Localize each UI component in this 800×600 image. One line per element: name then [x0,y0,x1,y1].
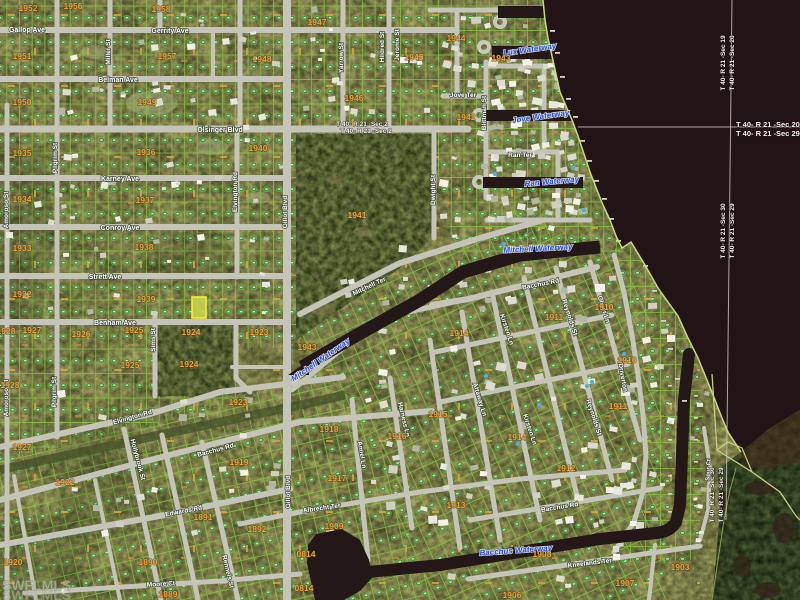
svg-text:1925: 1925 [125,325,144,335]
svg-text:1890: 1890 [139,557,158,567]
svg-text:Pilgrim St: Pilgrim St [51,376,58,407]
svg-text:1924: 1924 [180,359,199,369]
svg-text:1916: 1916 [388,431,407,441]
svg-text:Karney Ave: Karney Ave [101,176,139,183]
svg-text:Strett Ave: Strett Ave [89,274,122,281]
svg-text:1925: 1925 [121,360,140,370]
svg-text:Belman Ave: Belman Ave [98,77,138,84]
svg-text:1958: 1958 [152,4,171,14]
svg-text:1906: 1906 [503,590,522,600]
svg-text:Dwight St: Dwight St [430,174,437,205]
svg-text:1914: 1914 [508,432,527,442]
svg-text:1911: 1911 [609,401,628,411]
svg-text:1943: 1943 [298,342,317,352]
svg-text:1943: 1943 [492,53,511,63]
svg-text:1924: 1924 [182,327,201,337]
svg-text:1936: 1936 [137,147,156,157]
svg-text:1941: 1941 [348,210,367,220]
svg-text:T 40- R 21 -Sec 29: T 40- R 21 -Sec 29 [736,129,800,138]
svg-text:1944: 1944 [447,33,466,43]
svg-text:1938: 1938 [135,242,154,252]
svg-text:1912: 1912 [557,463,576,473]
svg-text:1920: 1920 [4,557,23,567]
svg-text:1914: 1914 [450,328,469,338]
svg-text:Ran Ter: Ran Ter [508,152,532,159]
svg-text:1917: 1917 [328,473,347,483]
svg-text:Olsinger Blvd: Olsinger Blvd [197,127,243,134]
svg-text:1889: 1889 [159,589,178,599]
svg-text:T 40- R 21 -Sec 19: T 40- R 21 -Sec 19 [720,35,727,91]
svg-text:1952: 1952 [19,3,38,13]
svg-text:1907: 1907 [616,578,635,588]
svg-text:Blittman St: Blittman St [481,95,488,130]
svg-text:1892: 1892 [248,524,267,534]
svg-text:T 40- R 21 -Sec 20: T 40- R 21 -Sec 20 [736,120,800,129]
svg-text:Conroy Ave: Conroy Ave [101,225,140,232]
svg-text:Miller St: Miller St [105,39,112,65]
svg-text:1935: 1935 [13,148,32,158]
svg-text:Amoroso St: Amoroso St [3,191,10,229]
svg-text:1949: 1949 [138,97,157,107]
svg-text:Yarrow St: Yarrow St [338,42,345,73]
svg-text:1926: 1926 [72,329,91,339]
svg-text:1932: 1932 [13,289,32,299]
svg-text:1942: 1942 [457,112,476,122]
svg-text:1891: 1891 [194,512,213,522]
svg-text:1913: 1913 [447,500,466,510]
svg-text:1950: 1950 [13,97,32,107]
svg-text:1946: 1946 [345,93,364,103]
svg-text:1903: 1903 [671,562,690,572]
svg-text:1939: 1939 [137,294,156,304]
svg-text:T 40- R 21 -Sec 2: T 40- R 21 -Sec 2 [340,128,392,135]
svg-text:1910: 1910 [595,302,614,312]
svg-text:1923: 1923 [229,397,248,407]
svg-text:Hildred St: Hildred St [379,31,386,63]
svg-text:1922: 1922 [56,477,75,487]
svg-text:SWFLMLS: SWFLMLS [2,587,71,600]
svg-text:T 40- R 21 -Sec 30: T 40- R 21 -Sec 30 [720,203,727,259]
svg-text:Sims St: Sims St [150,327,157,352]
svg-text:1947: 1947 [308,17,327,27]
svg-text:Elvington Rd: Elvington Rd [232,172,239,212]
svg-text:1945: 1945 [405,52,424,62]
svg-text:1911: 1911 [545,312,564,322]
svg-text:Jerome St: Jerome St [394,28,401,60]
svg-text:T 40- R 21 -Sec 29: T 40- R 21 -Sec 29 [729,203,736,259]
svg-text:T 40- R 21 -Sec 29: T 40- R 21 -Sec 29 [718,467,725,523]
svg-text:1915: 1915 [429,409,448,419]
svg-text:T 40- R 21 -Sec 20: T 40- R 21 -Sec 20 [729,35,736,91]
svg-text:1933: 1933 [13,243,32,253]
svg-text:1934: 1934 [13,194,32,204]
svg-text:1918: 1918 [320,424,339,434]
svg-text:1909: 1909 [325,521,344,531]
svg-text:Gillot Blvd: Gillot Blvd [285,476,292,509]
svg-text:1957: 1957 [158,51,177,61]
svg-text:1940: 1940 [249,143,268,153]
svg-text:1928: 1928 [1,380,20,390]
svg-text:1919: 1919 [230,457,249,467]
svg-text:1937: 1937 [136,195,155,205]
svg-text:Gerrity Ave: Gerrity Ave [151,28,188,35]
svg-text:T 40- R 21 -Sec 2: T 40- R 21 -Sec 2 [336,121,388,128]
svg-text:1956: 1956 [64,1,83,11]
svg-text:1951: 1951 [13,51,32,61]
svg-text:1948: 1948 [253,54,272,64]
svg-text:1928: 1928 [0,326,16,336]
svg-text:1927: 1927 [23,325,42,335]
svg-text:0814: 0814 [295,583,314,593]
svg-text:1923: 1923 [250,327,269,337]
svg-text:T 40- R 21 -Sec 30: T 40- R 21 -Sec 30 [709,467,716,523]
svg-text:Jove Ter: Jove Ter [450,92,477,99]
svg-text:Gillot Blvd: Gillot Blvd [282,196,289,229]
svg-text:Pilgrim St: Pilgrim St [52,142,59,173]
svg-text:1908: 1908 [533,549,552,559]
svg-text:1910: 1910 [618,355,637,365]
svg-text:Gallop Ave: Gallop Ave [9,27,45,34]
svg-text:1927: 1927 [13,442,32,452]
svg-text:0814: 0814 [297,549,316,559]
